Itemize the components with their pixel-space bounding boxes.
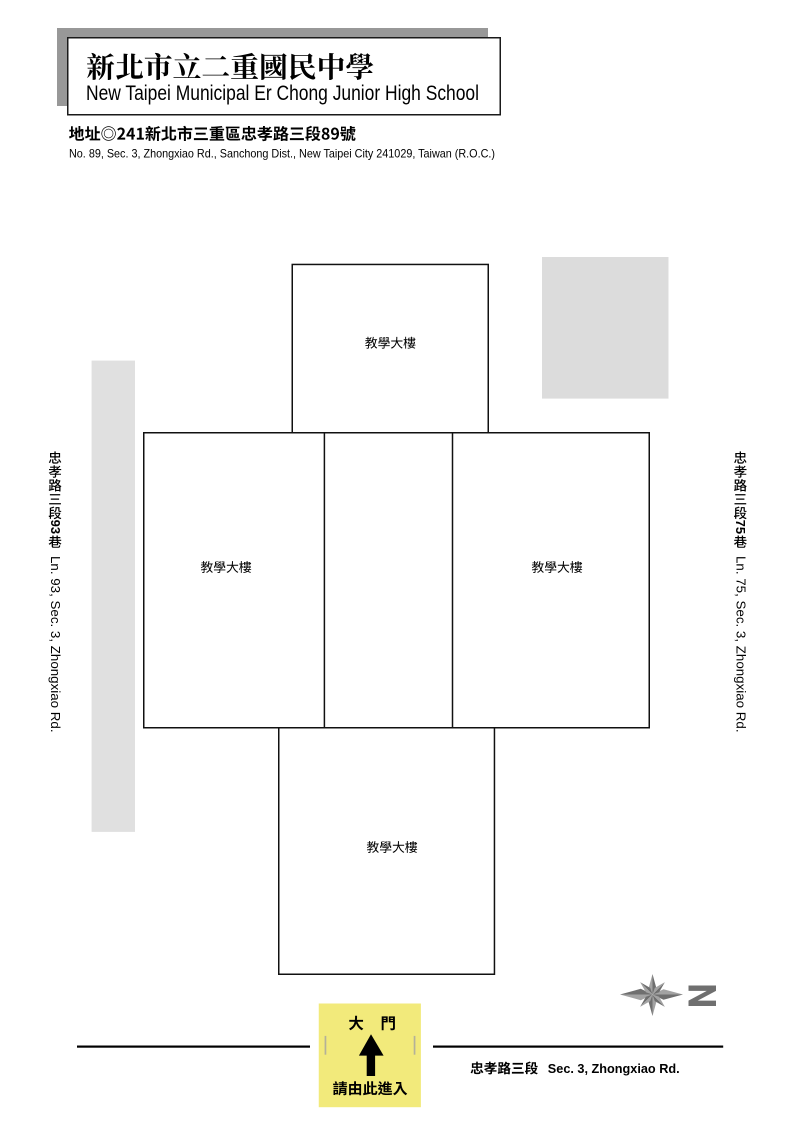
svg-text:New Taipei Municipal Er Chong: New Taipei Municipal Er Chong Junior Hig… bbox=[86, 82, 479, 105]
svg-text:Ln. 93, Sec. 3, Zhongxiao Rd.: Ln. 93, Sec. 3, Zhongxiao Rd. bbox=[48, 556, 63, 733]
svg-text:Ln. 75, Sec. 3, Zhongxiao Rd.: Ln. 75, Sec. 3, Zhongxiao Rd. bbox=[733, 556, 748, 733]
svg-text:Sec. 3, Zhongxiao Rd.: Sec. 3, Zhongxiao Rd. bbox=[548, 1062, 680, 1076]
svg-text:75: 75 bbox=[733, 520, 748, 534]
svg-text:No. 89, Sec. 3, Zhongxiao Rd.,: No. 89, Sec. 3, Zhongxiao Rd., Sanchong … bbox=[69, 147, 495, 160]
svg-text:93: 93 bbox=[48, 520, 63, 534]
